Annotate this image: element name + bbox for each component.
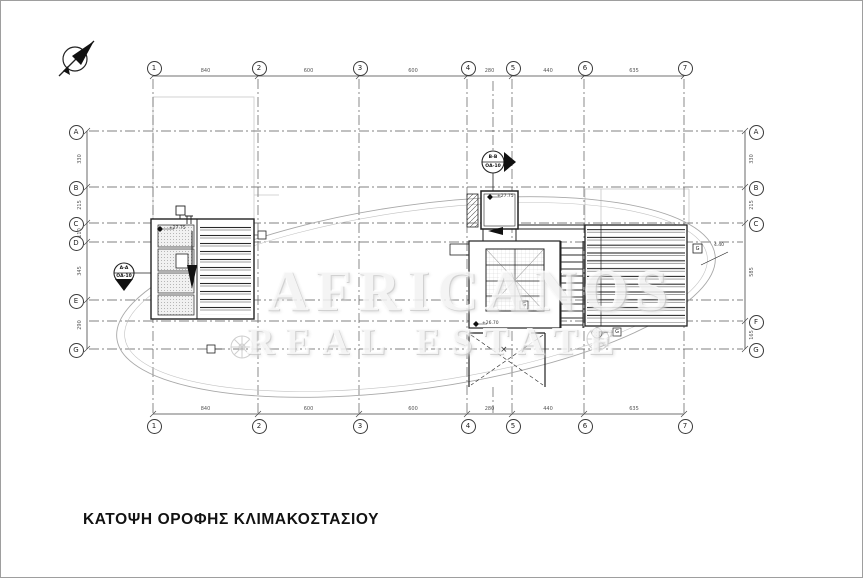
level-annotation-room: +27.75 [497, 194, 514, 199]
north-arrow-icon [59, 41, 94, 76]
grid-bubble-bottom-2: 2 [252, 419, 267, 434]
grate-marker-2: G [613, 328, 621, 336]
grid-bubble-bottom-4: 4 [461, 419, 476, 434]
dim-right-b-c: 215 [749, 190, 755, 220]
level-annotation-lower: +26.70 [482, 321, 499, 326]
void-mark: × [500, 345, 508, 355]
dim-top-4-5: 280 [472, 68, 508, 74]
dim-right-c-f: 585 [749, 257, 755, 287]
dim-top-2-3: 600 [291, 68, 327, 74]
dim-bottom-6-7: 635 [616, 406, 652, 412]
grid-bubble-left-a: A [69, 125, 84, 140]
drawing-sheet: AFRICANOS REAL ESTATE [0, 0, 863, 578]
drawing-title: ΚΑΤΟΨΗ ΟΡΟΦΗΣ ΚΛΙΜΑΚΟΣΤΑΣΙΟΥ [83, 511, 379, 529]
level-annotation-stair: +27.75 [169, 226, 186, 231]
dim-right-a-b: 330 [749, 144, 755, 174]
dim-left-a-b: 330 [77, 144, 83, 174]
grid-bubble-top-3: 3 [353, 61, 368, 76]
grid-bubble-top-5: 5 [506, 61, 521, 76]
grate-marker-3: G [693, 245, 702, 254]
grid-bubble-top-2: 2 [252, 61, 267, 76]
dim-top-3-4: 600 [395, 68, 431, 74]
dim-bottom-4-5: 280 [472, 406, 508, 412]
grid-bubble-bottom-1: 1 [147, 419, 162, 434]
dim-top-6-7: 635 [616, 68, 652, 74]
grid-bubble-bottom-6: 6 [578, 419, 593, 434]
section-a-sheet: ΟΑ-10 [112, 274, 136, 279]
section-a-label: A-A [112, 266, 136, 271]
grid-bubble-top-1: 1 [147, 61, 162, 76]
grid-bubble-top-6: 6 [578, 61, 593, 76]
section-b-label: B-B [481, 155, 505, 160]
grid-bubble-right-a: A [749, 125, 764, 140]
dim-bottom-5-6: 440 [530, 406, 566, 412]
grid-bubble-left-g: G [69, 343, 84, 358]
dim-bottom-3-4: 600 [395, 406, 431, 412]
grid-bubble-top-7: 7 [678, 61, 693, 76]
dim-right-f-g: 165 [749, 320, 755, 350]
plan-linework [1, 1, 863, 578]
dim-bottom-1-2: 840 [188, 406, 224, 412]
grid-bubble-bottom-7: 7 [678, 419, 693, 434]
dim-left-e-g: 290 [77, 310, 83, 340]
dim-top-5-6: 440 [530, 68, 566, 74]
curve-annotation: 4.40 [714, 243, 724, 248]
watermark-logo-icon [231, 328, 609, 358]
dim-left-b-c: 215 [77, 190, 83, 220]
grid-bubble-bottom-5: 5 [506, 419, 521, 434]
stair-roof-block [450, 191, 728, 387]
dim-left-d-e: 345 [77, 256, 83, 286]
grid-bubble-bottom-3: 3 [353, 419, 368, 434]
dim-top-1-2: 840 [188, 68, 224, 74]
section-b-sheet: ΟΑ-10 [481, 164, 505, 169]
dim-bottom-2-3: 600 [291, 406, 327, 412]
grid-bubble-left-e: E [69, 294, 84, 309]
grate-marker-1: G [520, 301, 528, 309]
dim-left-c-d: 110 [77, 218, 83, 248]
